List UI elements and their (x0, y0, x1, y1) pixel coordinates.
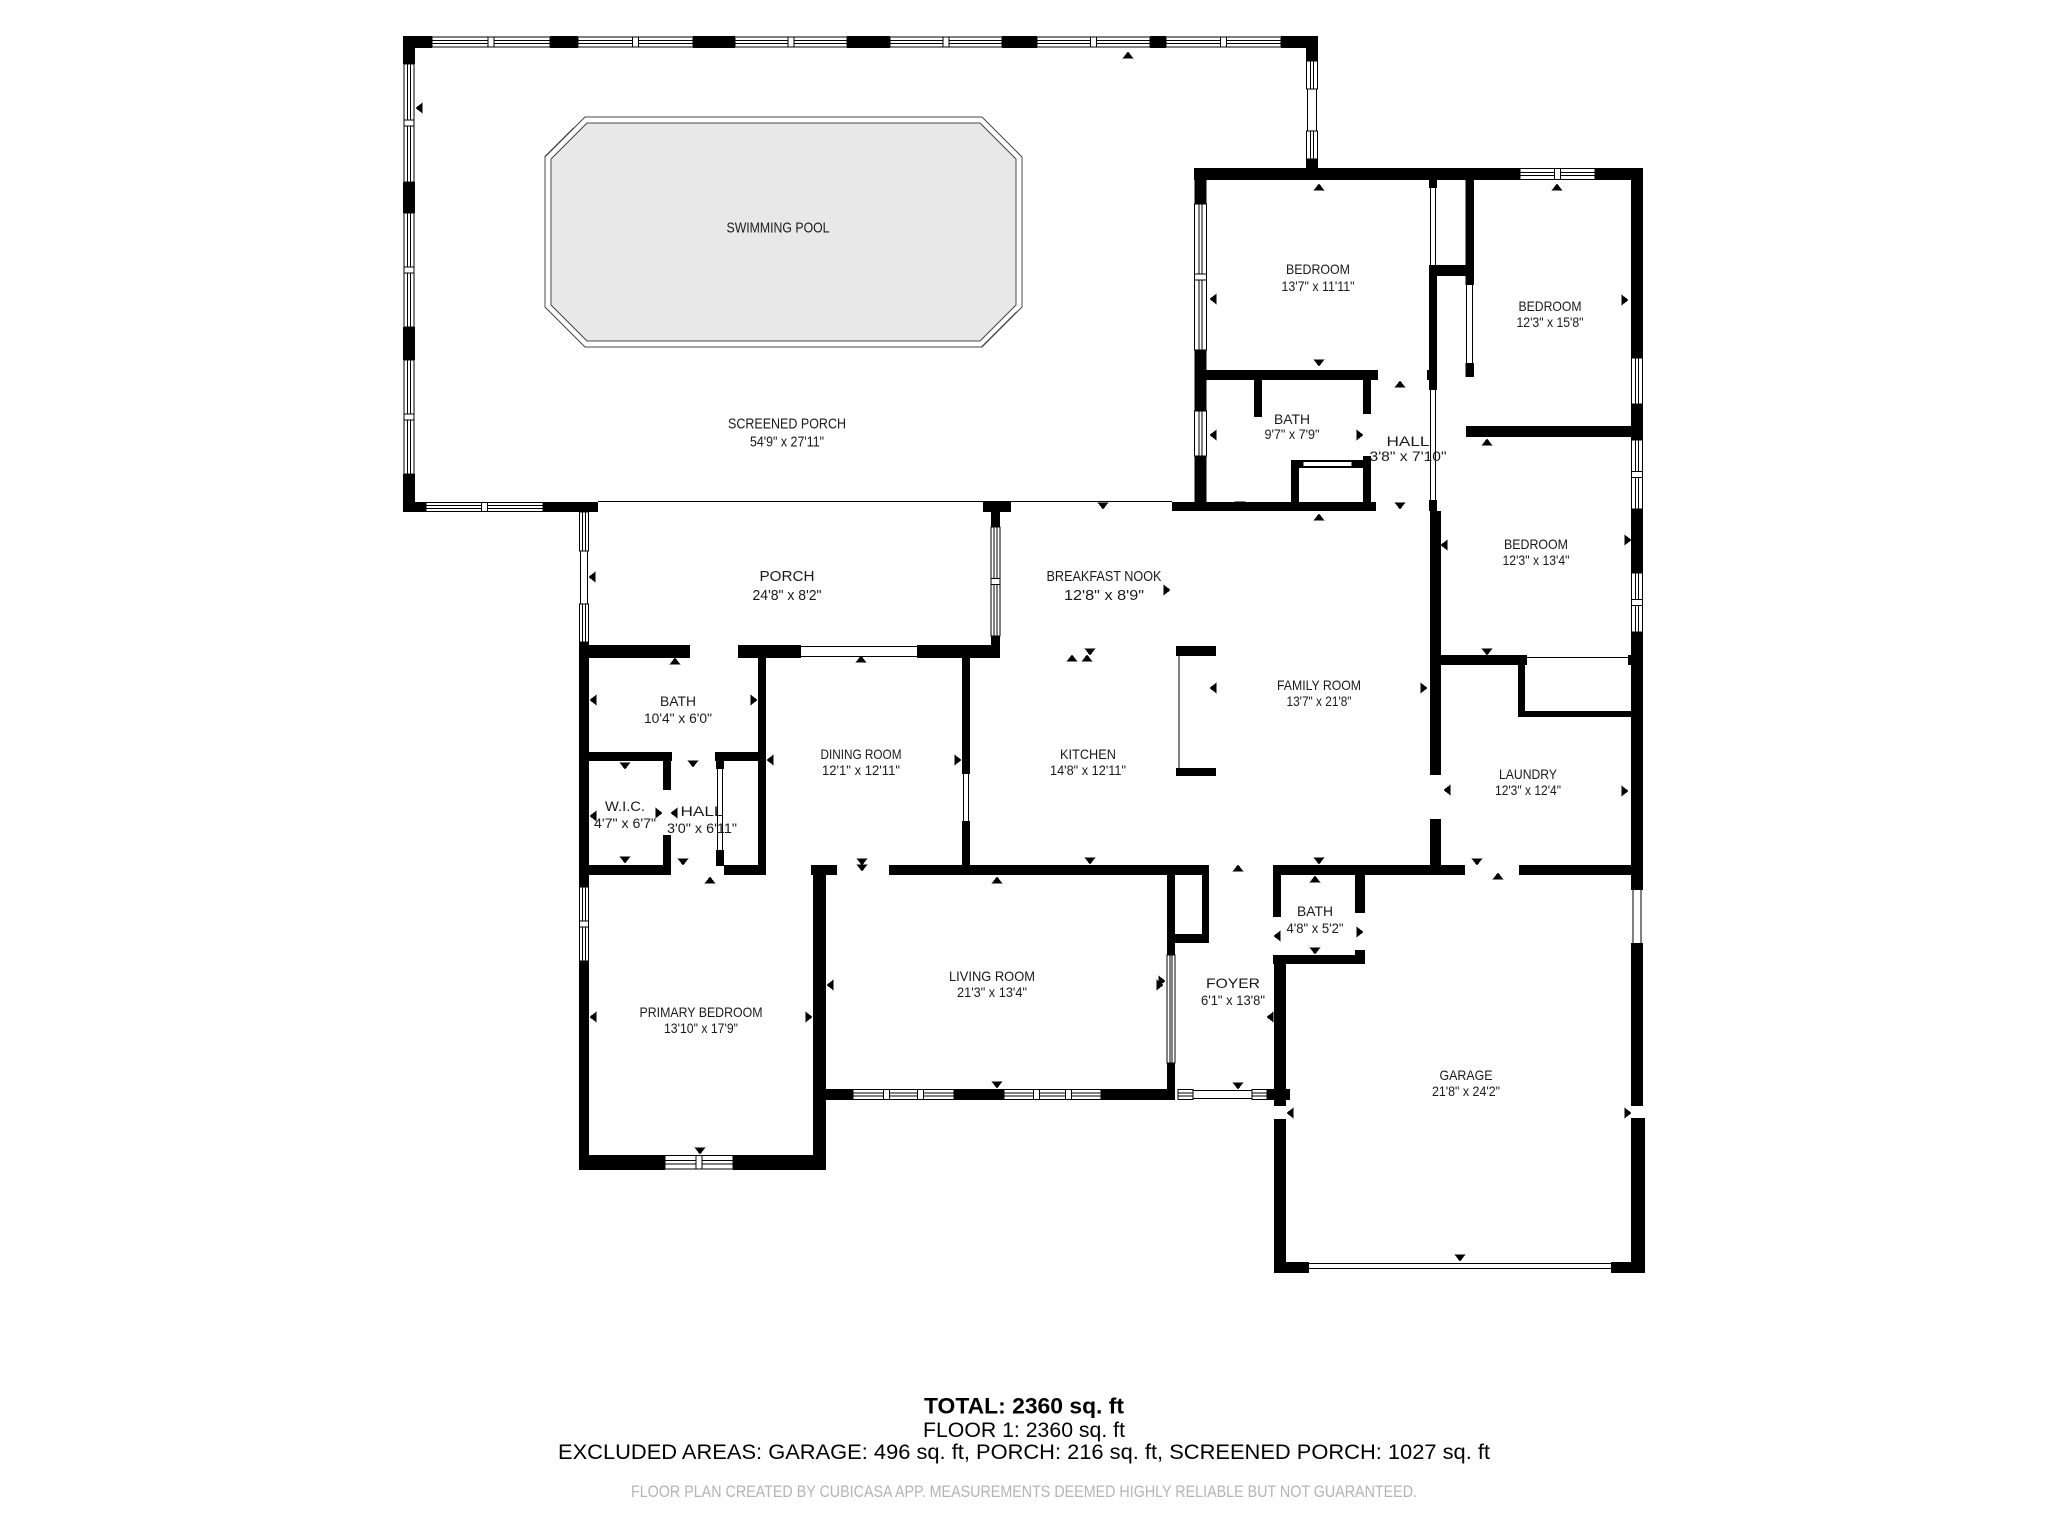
svg-text:BATH: BATH (660, 693, 696, 709)
svg-text:PORCH: PORCH (760, 569, 815, 585)
svg-text:12'3" x 13'4": 12'3" x 13'4" (1503, 552, 1570, 568)
svg-text:PRIMARY BEDROOM: PRIMARY BEDROOM (640, 1004, 763, 1020)
svg-text:9'7" x 7'9": 9'7" x 7'9" (1265, 426, 1320, 442)
svg-text:KITCHEN: KITCHEN (1060, 746, 1116, 762)
svg-text:FOYER: FOYER (1206, 975, 1260, 991)
svg-text:BATH: BATH (1297, 903, 1333, 919)
svg-text:LAUNDRY: LAUNDRY (1499, 766, 1558, 782)
svg-text:DINING ROOM: DINING ROOM (821, 746, 902, 762)
svg-text:FAMILY ROOM: FAMILY ROOM (1277, 677, 1361, 693)
svg-text:LIVING ROOM: LIVING ROOM (949, 968, 1035, 984)
svg-text:4'7" x 6'7": 4'7" x 6'7" (594, 815, 656, 831)
svg-text:21'8" x 24'2": 21'8" x 24'2" (1432, 1083, 1500, 1099)
svg-text:BREAKFAST NOOK: BREAKFAST NOOK (1047, 569, 1162, 585)
svg-text:12'3" x 12'4": 12'3" x 12'4" (1495, 782, 1561, 798)
svg-text:BEDROOM: BEDROOM (1519, 298, 1582, 314)
svg-text:3'0" x 6'11": 3'0" x 6'11" (667, 820, 737, 836)
svg-text:GARAGE: GARAGE (1440, 1067, 1493, 1083)
svg-text:6'1" x 13'8": 6'1" x 13'8" (1201, 992, 1265, 1008)
svg-text:54'9" x 27'11": 54'9" x 27'11" (750, 434, 824, 451)
svg-text:13'7" x 21'8": 13'7" x 21'8" (1287, 693, 1352, 709)
svg-text:HALL: HALL (1387, 433, 1430, 449)
svg-text:12'3" x 15'8": 12'3" x 15'8" (1517, 314, 1584, 330)
svg-text:BATH: BATH (1274, 411, 1310, 427)
svg-text:14'8" x 12'11": 14'8" x 12'11" (1050, 762, 1126, 778)
svg-text:SWIMMING POOL: SWIMMING POOL (727, 220, 830, 237)
svg-text:HALL: HALL (681, 803, 724, 819)
svg-text:EXCLUDED AREAS: GARAGE: 496 sq: EXCLUDED AREAS: GARAGE: 496 sq. ft, PORC… (558, 1440, 1490, 1464)
svg-text:10'4" x 6'0": 10'4" x 6'0" (644, 710, 712, 726)
svg-text:TOTAL: 2360 sq. ft: TOTAL: 2360 sq. ft (924, 1394, 1125, 1419)
svg-text:FLOOR 1: 2360 sq. ft: FLOOR 1: 2360 sq. ft (923, 1418, 1125, 1442)
svg-text:FLOOR PLAN CREATED BY CUBICASA: FLOOR PLAN CREATED BY CUBICASA APP. MEAS… (631, 1483, 1417, 1501)
svg-text:BEDROOM: BEDROOM (1504, 536, 1568, 552)
svg-text:13'7" x 11'11": 13'7" x 11'11" (1282, 278, 1355, 294)
svg-text:3'8" x 7'10": 3'8" x 7'10" (1370, 448, 1447, 464)
svg-text:W.I.C.: W.I.C. (605, 798, 645, 814)
svg-text:12'8" x 8'9": 12'8" x 8'9" (1064, 588, 1144, 604)
svg-text:12'1" x 12'11": 12'1" x 12'11" (822, 762, 900, 778)
svg-text:13'10" x 17'9": 13'10" x 17'9" (664, 1020, 738, 1036)
svg-text:4'8" x 5'2": 4'8" x 5'2" (1287, 920, 1344, 936)
svg-text:21'3" x 13'4": 21'3" x 13'4" (957, 984, 1027, 1000)
svg-text:24'8" x 8'2": 24'8" x 8'2" (753, 588, 822, 604)
svg-text:SCREENED PORCH: SCREENED PORCH (728, 416, 846, 433)
svg-text:BEDROOM: BEDROOM (1286, 261, 1350, 277)
